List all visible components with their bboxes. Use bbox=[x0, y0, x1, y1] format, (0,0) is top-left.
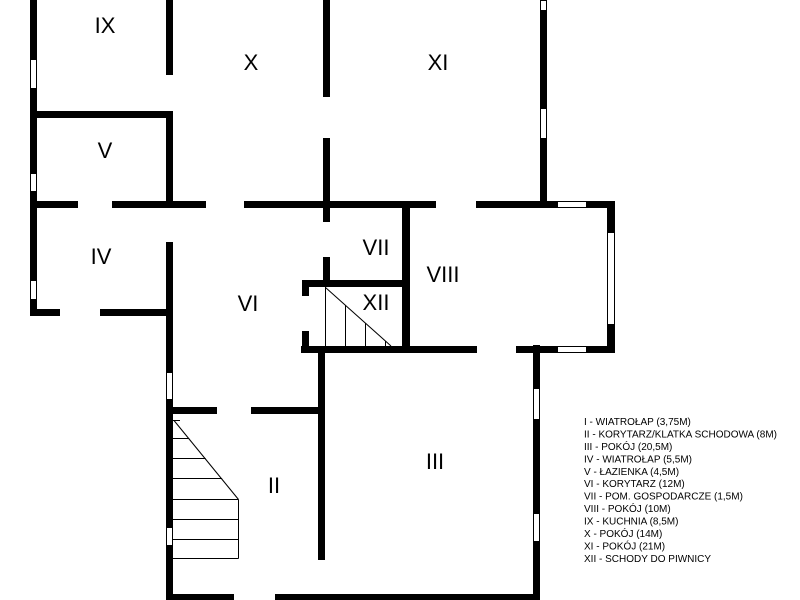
svg-text:VIII: VIII bbox=[426, 262, 459, 287]
svg-text:X: X bbox=[244, 50, 259, 75]
svg-text:VII: VII bbox=[363, 235, 390, 260]
svg-text:V: V bbox=[98, 138, 113, 163]
svg-text:II: II bbox=[268, 473, 280, 498]
svg-text:V - ŁAZIENKA (4,5M): V - ŁAZIENKA (4,5M) bbox=[584, 467, 679, 478]
svg-text:I - WIATROŁAP (3,75M): I - WIATROŁAP (3,75M) bbox=[584, 417, 691, 428]
svg-text:IX: IX bbox=[95, 13, 116, 38]
svg-text:III - POKÓJ (20,5M): III - POKÓJ (20,5M) bbox=[584, 440, 672, 453]
svg-text:X - POKÓJ (14M): X - POKÓJ (14M) bbox=[584, 527, 662, 540]
svg-text:VIII - POKÓJ (10M): VIII - POKÓJ (10M) bbox=[584, 502, 671, 515]
svg-text:IV: IV bbox=[91, 244, 112, 269]
svg-text:IV - WIATROŁAP (5,5M): IV - WIATROŁAP (5,5M) bbox=[584, 454, 692, 465]
svg-text:XI - POKÓJ (21M): XI - POKÓJ (21M) bbox=[584, 540, 665, 553]
svg-text:VI: VI bbox=[238, 291, 259, 316]
svg-text:XI: XI bbox=[428, 50, 449, 75]
svg-text:IX - KUCHNIA (8,5M): IX - KUCHNIA (8,5M) bbox=[584, 517, 678, 528]
svg-text:VII - POM. GOSPODARCZE (1,5M): VII - POM. GOSPODARCZE (1,5M) bbox=[584, 492, 743, 503]
svg-text:III: III bbox=[426, 449, 444, 474]
svg-text:XII - SCHODY DO PIWNICY: XII - SCHODY DO PIWNICY bbox=[584, 554, 711, 565]
svg-text:II - KORYTARZ/KLATKA SCHODOWA: II - KORYTARZ/KLATKA SCHODOWA (8M) bbox=[584, 429, 777, 440]
svg-text:VI - KORYTARZ (12M): VI - KORYTARZ (12M) bbox=[584, 479, 685, 490]
svg-text:XII: XII bbox=[363, 290, 390, 315]
